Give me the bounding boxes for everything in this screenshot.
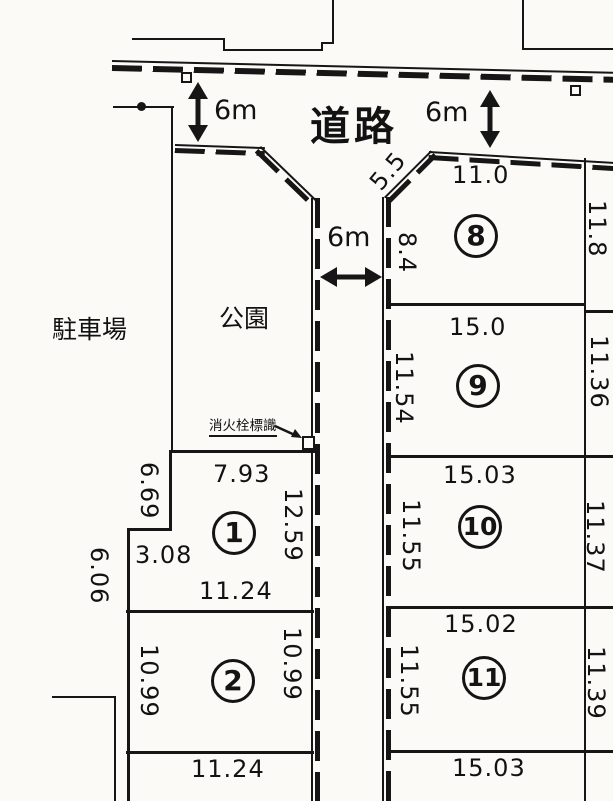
dim-p1-left-lower: 6.06 xyxy=(85,547,113,601)
dim-p9-left: 11.54 xyxy=(390,351,418,417)
dim-p1-right: 12.59 xyxy=(279,488,307,554)
street-east-edge xyxy=(382,197,391,801)
plot-boundary xyxy=(169,450,172,531)
land-plot-site-plan: 道路 駐車場 公園 消火栓標識 6m 6m 6m 5.5 1 2 8 9 10 … xyxy=(0,0,613,801)
plot-boundary xyxy=(386,303,585,306)
plot-boundary xyxy=(126,610,314,613)
width-arrow-horizontal xyxy=(320,263,382,291)
width-arrow-vertical xyxy=(476,90,504,148)
plot-boundary xyxy=(126,751,314,754)
dim-p8-top: 11.0 xyxy=(452,161,509,189)
adjacent-boundary xyxy=(114,696,116,801)
plot-number-11: 11 xyxy=(462,656,506,700)
street-width-label: 6m xyxy=(327,222,370,253)
plot-boundary xyxy=(127,528,130,801)
park-label: 公園 xyxy=(219,299,269,335)
fire-hydrant-label: 消火栓標識 xyxy=(209,414,277,434)
dim-p8-left: 8.4 xyxy=(393,232,421,272)
street-west-edge xyxy=(311,198,320,801)
parking-park-divider xyxy=(171,106,173,452)
dim-p1-bottom: 11.24 xyxy=(199,577,273,605)
plot-number-1: 1 xyxy=(212,511,256,555)
dim-p1-step: 3.08 xyxy=(135,541,192,569)
park-corner-diagonal xyxy=(255,146,318,207)
plot-boundary xyxy=(169,450,315,453)
building-outline xyxy=(522,48,613,50)
dim-p11-right: 11.39 xyxy=(582,646,610,712)
width-arrow-vertical xyxy=(184,82,212,142)
adjacent-boundary xyxy=(52,696,116,698)
road-label: 道路 xyxy=(310,94,398,152)
dim-p11-left: 11.55 xyxy=(395,644,423,710)
utility-marker xyxy=(570,85,581,96)
leader-arrow xyxy=(274,423,304,445)
dim-p2-left: 10.99 xyxy=(135,644,163,710)
road-width-label: 6m xyxy=(214,95,257,126)
building-outline xyxy=(132,38,225,40)
parking-label: 駐車場 xyxy=(52,310,127,346)
dim-p10-right: 11.37 xyxy=(581,500,609,566)
dim-p9-right: 11.36 xyxy=(585,335,613,401)
park-north-edge xyxy=(175,144,265,156)
plot-boundary xyxy=(127,528,172,531)
plot-boundary xyxy=(386,606,613,609)
dim-p1-top: 7.93 xyxy=(213,460,270,488)
dim-p2-right: 10.99 xyxy=(278,627,306,693)
plot-boundary xyxy=(386,455,613,458)
plot-number-9: 9 xyxy=(456,364,500,408)
plot-boundary xyxy=(584,310,613,313)
dim-p9-bottom: 15.03 xyxy=(443,461,517,489)
building-outline xyxy=(522,0,524,50)
plot-boundary xyxy=(388,750,613,753)
survey-point xyxy=(137,102,146,111)
building-outline xyxy=(321,43,323,51)
building-outline xyxy=(332,0,334,44)
dim-p10-left: 11.55 xyxy=(397,499,425,565)
plot-number-10: 10 xyxy=(458,505,502,549)
dim-p8-right: 11.8 xyxy=(583,200,611,254)
dim-p8-bottom: 15.0 xyxy=(449,313,506,341)
plot-number-2: 2 xyxy=(211,659,255,703)
dim-p2-bottom: 11.24 xyxy=(191,755,265,783)
dim-p11-bottom: 15.03 xyxy=(452,754,526,782)
building-outline xyxy=(223,49,323,51)
dim-p1-left-upper: 6.69 xyxy=(135,462,163,516)
road-width-label: 6m xyxy=(425,97,468,128)
dim-p10-bottom: 15.02 xyxy=(444,610,518,638)
dim-corner-cut: 5.5 xyxy=(363,145,413,197)
plot-number-8: 8 xyxy=(454,214,498,258)
